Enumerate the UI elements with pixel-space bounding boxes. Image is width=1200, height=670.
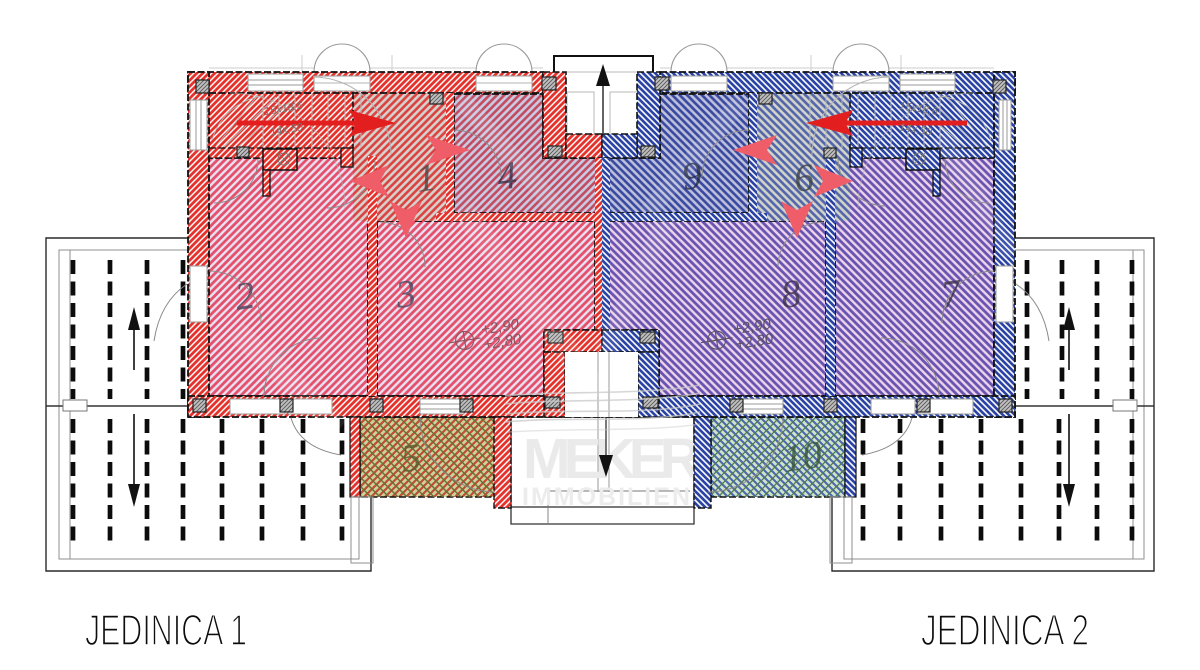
svg-text:JEDINICA 1: JEDINICA 1	[85, 605, 247, 655]
svg-text:MEKER: MEKER	[523, 427, 701, 491]
svg-text:JEDINICA 2: JEDINICA 2	[921, 605, 1089, 655]
svg-text:10: 10	[780, 433, 825, 481]
svg-text:IMMOBILIEN: IMMOBILIEN	[522, 483, 690, 511]
